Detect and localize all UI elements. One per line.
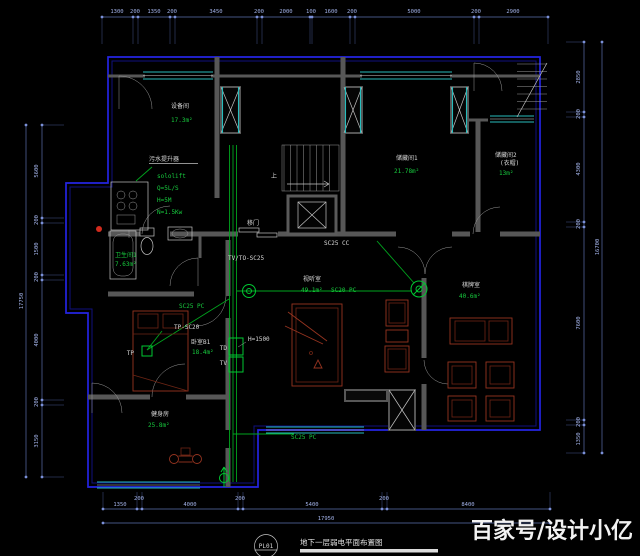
sololift-power: N=1.5Kw (157, 209, 183, 216)
elevator (288, 196, 336, 234)
dim-label: 200 (576, 109, 582, 119)
conduit-label: SC20 PC (331, 287, 357, 294)
room-area: 49.1m² (301, 287, 323, 294)
room-area: 25.8m² (148, 422, 170, 429)
red-marker-dot (96, 226, 102, 232)
room-area: 13m² (499, 170, 513, 177)
room-area: 7.63m² (115, 261, 137, 268)
dim-label: 2000 (279, 9, 292, 15)
dim-label: 4300 (576, 162, 582, 175)
dim-label: 200 (34, 397, 40, 407)
stair-up-label: 上 (271, 172, 277, 180)
cad-drawing-viewport: 1300 200 1350 200 3450 200 2000 100 1600… (0, 0, 640, 556)
room-labels: 设备间 17.3m² 储藏间1 21.78m² 储藏间2 (衣帽) 13m² 卫… (115, 102, 519, 429)
top-dim-ticks (101, 16, 550, 44)
dim-label: 200 (134, 496, 144, 502)
room-name: 视听室 (303, 275, 321, 283)
dim-label: 5400 (305, 502, 318, 508)
dim-label: 1300 (110, 9, 123, 15)
dimension-layer: 1300 200 1350 200 3450 200 2000 100 1600… (19, 9, 603, 524)
room-area: 21.78m² (394, 168, 419, 175)
dim-label: 200 (576, 219, 582, 229)
dim-label: 2850 (576, 70, 582, 83)
dim-label: 2900 (506, 9, 519, 15)
pool-table (285, 304, 342, 386)
dim-label: 200 (34, 215, 40, 225)
room-subname: (衣帽) (500, 159, 519, 167)
room-name: 设备间 (171, 102, 189, 110)
sliding-door-label: 移门 (247, 219, 259, 227)
dim-total-label: 17950 (318, 516, 335, 522)
dim-label: 1600 (324, 9, 337, 15)
dim-label: 100 (306, 9, 316, 15)
dim-label: 200 (379, 496, 389, 502)
conduit-label: SC25 PC (291, 434, 317, 441)
dim-label: 5000 (407, 9, 420, 15)
sololift-model: sololift (157, 173, 186, 180)
dim-label: 200 (130, 9, 140, 15)
room-name: 健身房 (151, 410, 169, 418)
room-area: 17.3m² (171, 117, 193, 124)
floorplan-canvas[interactable]: 1300 200 1350 200 3450 200 2000 100 1600… (0, 0, 640, 556)
shaft-box (344, 87, 362, 133)
shaft-box (451, 87, 468, 133)
dim-label: 1350 (113, 502, 126, 508)
td-outlet-box (229, 338, 243, 355)
dim-label: 200 (34, 272, 40, 282)
room-name: 储藏间1 (396, 154, 418, 162)
left-dim-ticks (41, 124, 64, 479)
dim-label: 200 (347, 9, 357, 15)
shaft-box (221, 87, 240, 133)
room-name: 卧室B1 (191, 338, 211, 346)
conduit-label: SC25 PC (179, 303, 205, 310)
sololift-head: H=5M (157, 197, 172, 204)
dim-label: 4000 (183, 502, 196, 508)
dim-total-label: 16700 (595, 239, 601, 256)
outlet-label: TV (220, 360, 228, 367)
dim-label: 200 (254, 9, 264, 15)
conduit-label: TP-SC20 (174, 324, 200, 331)
dim-label: 8400 (461, 502, 474, 508)
structural-column (389, 390, 415, 430)
title-block: PL01 地下一层弱电平面布置图 (255, 535, 439, 556)
sewage-lifter-title: 污水提升器 (149, 155, 179, 163)
outlet-label: TD (220, 345, 228, 352)
sliding-door (239, 228, 277, 237)
dim-label: 1350 (147, 9, 160, 15)
stairs-top-right (517, 63, 547, 117)
chess-room-tables (448, 318, 514, 421)
dim-label: 7600 (576, 316, 582, 329)
bed-furniture (133, 311, 188, 391)
tv-outlet-box (229, 357, 243, 372)
conduit-label: TV/TO-SC25 (228, 255, 265, 262)
outlet-label: TP (127, 350, 135, 357)
dim-label: 200 (167, 9, 177, 15)
dim-label: 4000 (34, 333, 40, 346)
right-dim-ticks (566, 41, 585, 455)
room-area: 40.6m² (459, 293, 481, 300)
dim-label: 1500 (34, 242, 40, 255)
gym-equipment (170, 448, 202, 464)
dim-label: 1350 (576, 432, 582, 445)
title-underline-bar (300, 549, 438, 553)
height-note: H=1500 (248, 336, 270, 343)
stairs-main (282, 145, 339, 191)
dim-label: 3450 (209, 9, 222, 15)
doors (92, 63, 502, 413)
room-name: 棋牌室 (462, 281, 480, 289)
conduit-label: SC25 CC (324, 240, 350, 247)
wiring-layer (136, 145, 427, 487)
dim-label: 200 (235, 496, 245, 502)
dim-label: 3150 (34, 434, 40, 447)
drawing-title: 地下一层弱电平面布置图 (300, 537, 383, 547)
drawing-number: PL01 (259, 543, 274, 550)
sololift-flow: Q=5L/S (157, 185, 179, 192)
dim-total-label: 17750 (19, 293, 25, 310)
bottom-dim-ticks (102, 492, 552, 510)
dim-label: 5600 (34, 164, 40, 177)
watermark: 百家号/设计小亿 (471, 518, 633, 544)
dim-label: 200 (576, 417, 582, 427)
room-name: 储藏间2 (495, 151, 517, 159)
storage-rack (385, 300, 409, 372)
room-area: 18.4m² (192, 349, 214, 356)
dim-label: 200 (471, 9, 481, 15)
room-name: 卫生间1 (115, 251, 137, 259)
